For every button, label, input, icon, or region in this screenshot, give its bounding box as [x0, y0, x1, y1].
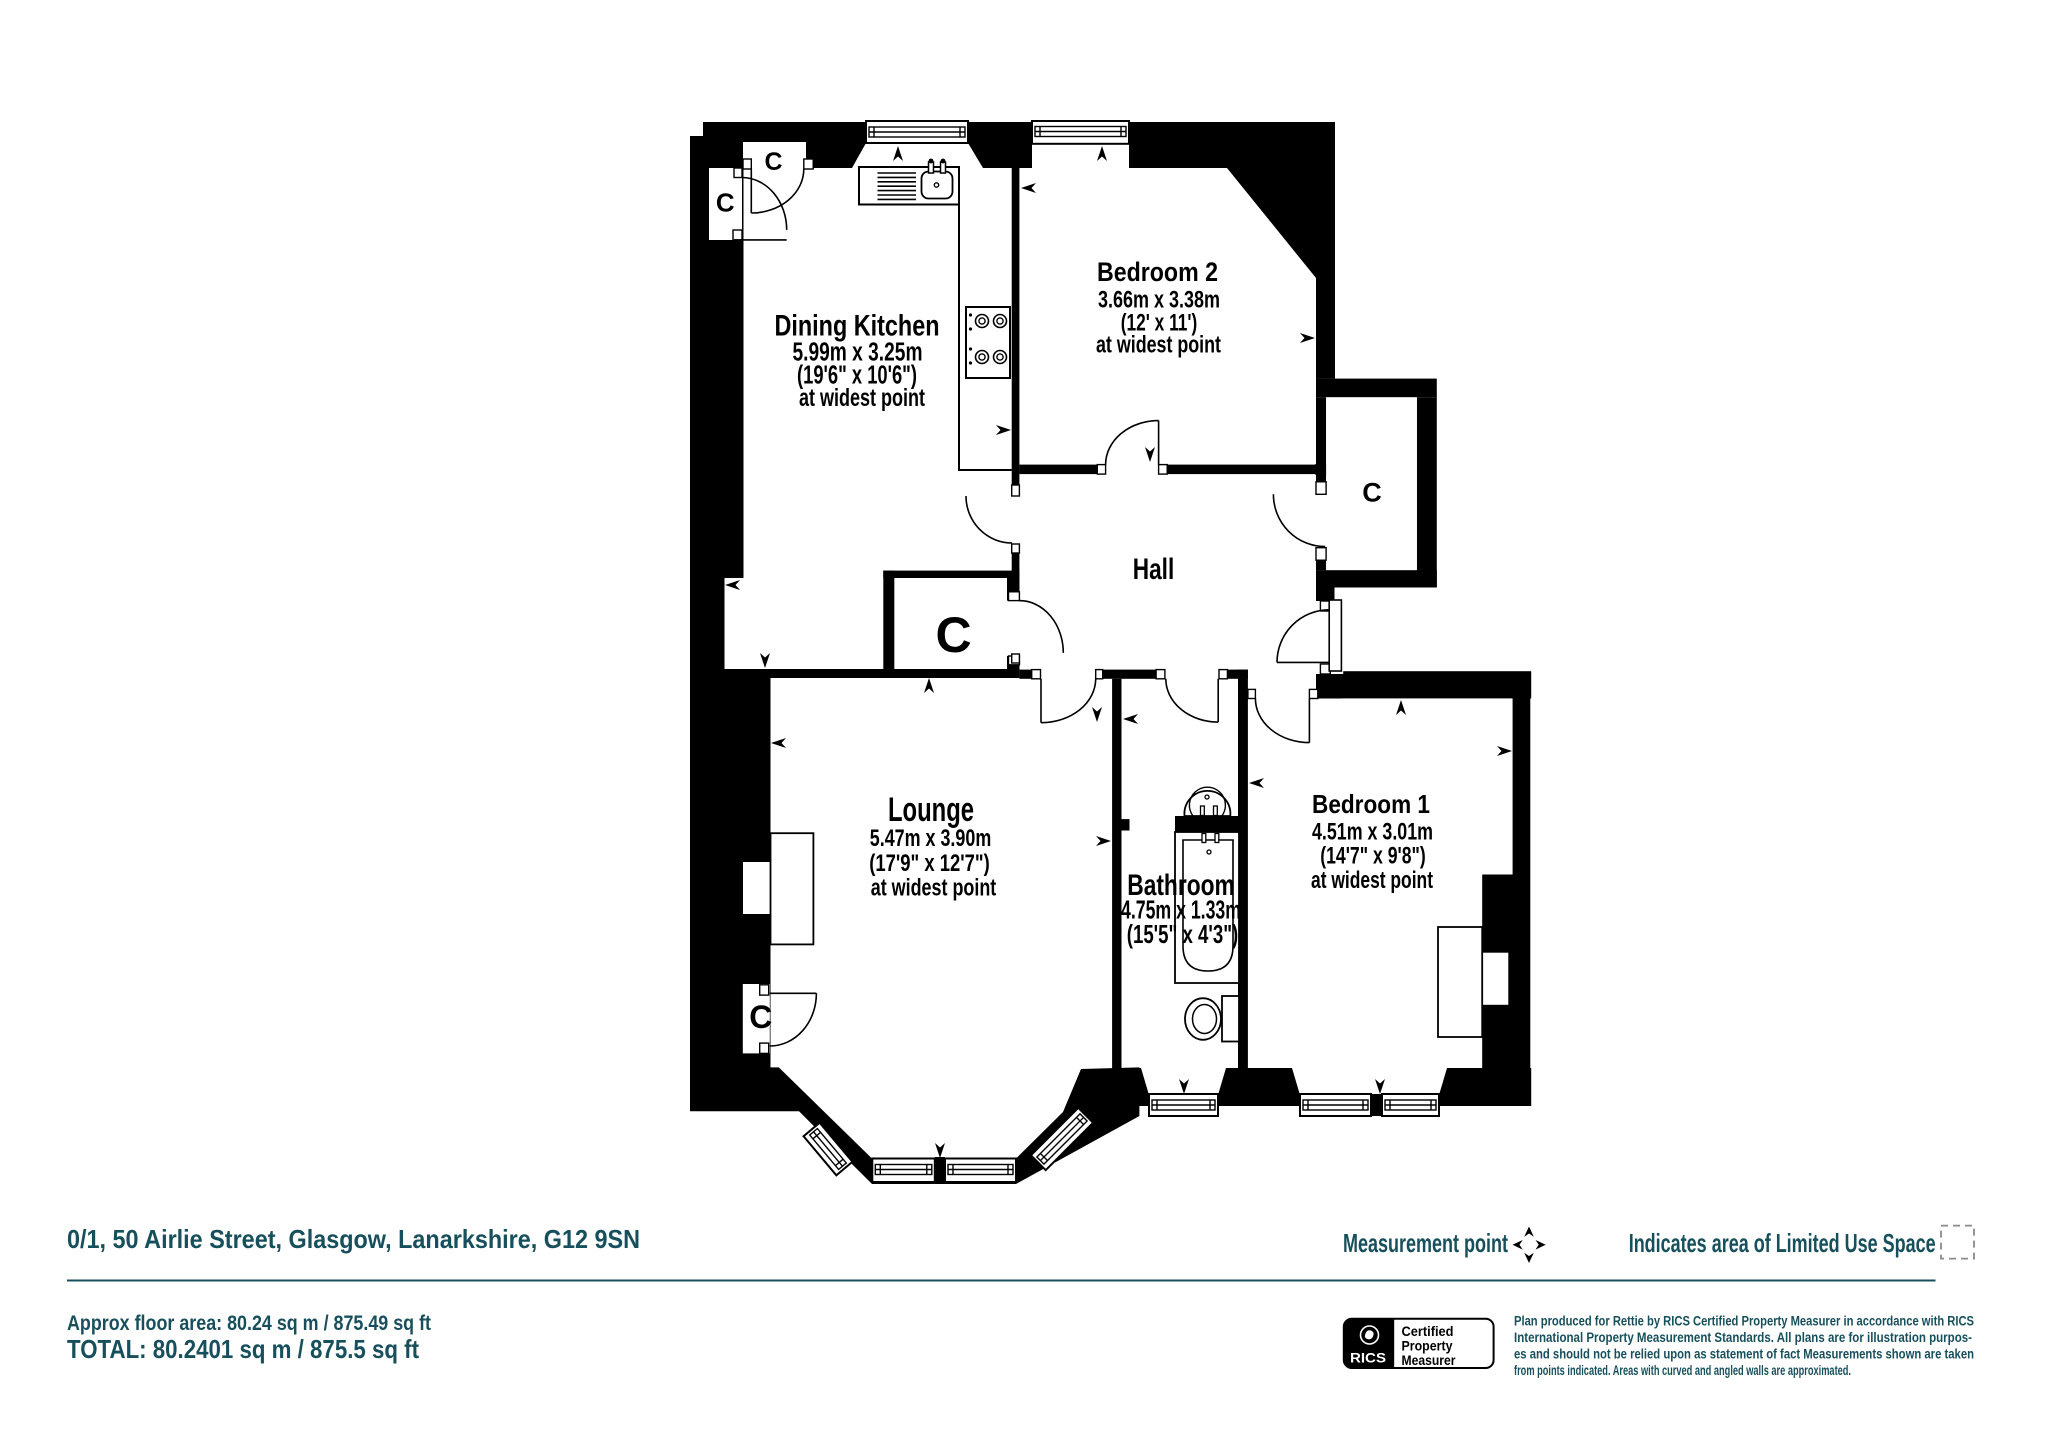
svg-text:Certified: Certified — [1402, 1324, 1454, 1339]
svg-text:(15'5" x 4'3"): (15'5" x 4'3") — [1127, 919, 1239, 949]
svg-text:(14'7" x 9'8"): (14'7" x 9'8") — [1320, 843, 1426, 870]
svg-text:at widest point: at widest point — [1096, 332, 1221, 359]
svg-text:5.47m x 3.90m: 5.47m x 3.90m — [870, 825, 992, 852]
svg-text:(17'9" x 12'7"): (17'9" x 12'7") — [869, 850, 990, 877]
svg-text:es and should not be relied up: es and should not be relied upon as stat… — [1514, 1347, 1974, 1362]
svg-text:C: C — [716, 188, 735, 218]
svg-text:C: C — [935, 607, 971, 663]
svg-text:RICS: RICS — [1350, 1351, 1386, 1366]
svg-text:Dining Kitchen: Dining Kitchen — [775, 309, 940, 342]
svg-text:International Property Measur: International Property Measurement Stand… — [1514, 1330, 1972, 1345]
svg-text:from points indicated. Areas w: from points indicated. Areas with curved… — [1514, 1363, 1851, 1378]
svg-text:Indicates area of Limited Use: Indicates area of Limited Use Space — [1629, 1228, 1936, 1258]
svg-text:Approx floor area: 80.24 sq m: Approx floor area: 80.24 sq m / 875.49 s… — [67, 1312, 431, 1335]
svg-text:Hall: Hall — [1133, 553, 1175, 586]
svg-text:Bedroom 1: Bedroom 1 — [1312, 789, 1430, 819]
svg-text:Bedroom 2: Bedroom 2 — [1097, 257, 1218, 287]
svg-text:at widest point: at widest point — [1311, 867, 1433, 894]
svg-text:Measurement point: Measurement point — [1343, 1228, 1508, 1258]
svg-text:Plan produced for Rettie by RI: Plan produced for Rettie by RICS Certifi… — [1514, 1314, 1974, 1329]
svg-text:Property: Property — [1402, 1339, 1453, 1354]
svg-text:Measurer: Measurer — [1402, 1353, 1457, 1368]
svg-text:C: C — [749, 999, 772, 1035]
svg-text:Lounge: Lounge — [888, 791, 974, 829]
svg-text:4.51m x 3.01m: 4.51m x 3.01m — [1312, 819, 1433, 846]
svg-text:0/1, 50 Airlie Street, Glasgow: 0/1, 50 Airlie Street, Glasgow, Lanarksh… — [67, 1224, 640, 1254]
svg-text:C: C — [764, 148, 782, 176]
svg-text:TOTAL: 80.2401 sq m / 875.5 sq: TOTAL: 80.2401 sq m / 875.5 sq ft — [67, 1334, 419, 1364]
svg-text:at widest point: at widest point — [871, 875, 997, 902]
svg-text:C: C — [1362, 478, 1382, 508]
svg-text:at widest point: at widest point — [799, 384, 925, 412]
